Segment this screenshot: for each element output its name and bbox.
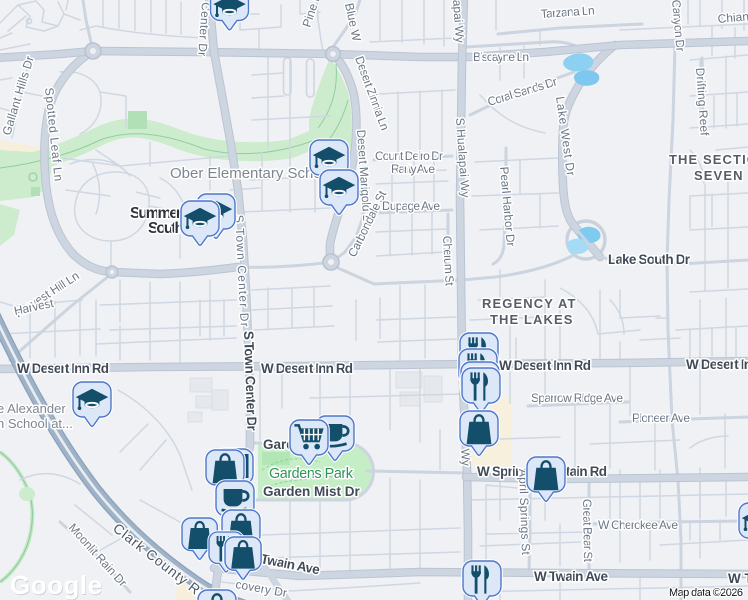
svg-text:W Twain Ave: W Twain Ave [534, 569, 608, 584]
svg-text:W Desert Inn Rd: W Desert Inn Rd [17, 361, 109, 376]
svg-text:Map data ©2026: Map data ©2026 [669, 587, 743, 599]
svg-text:Lake South Dr: Lake South Dr [608, 252, 691, 267]
svg-text:Pioneer Ave: Pioneer Ave [632, 411, 690, 425]
svg-text:South: South [148, 220, 184, 237]
svg-text:Garden Mist Dr: Garden Mist Dr [263, 484, 361, 499]
svg-text:Wy: Wy [458, 448, 473, 466]
svg-text:Sparrow Ridge Ave: Sparrow Ridge Ave [531, 391, 623, 405]
svg-text:SEVEN: SEVEN [694, 168, 744, 183]
svg-text:W Desert Inn Rd: W Desert Inn Rd [261, 361, 353, 376]
svg-text:Great Bear St: Great Bear St [580, 499, 595, 563]
svg-text:Dupage Ave: Dupage Ave [382, 199, 440, 213]
svg-text:W Desert Inn Rd: W Desert Inn Rd [499, 358, 591, 373]
svg-text:n School at...: n School at... [0, 416, 73, 431]
svg-text:W Desert In: W Desert In [686, 357, 748, 372]
svg-text:Biscayne Ln: Biscayne Ln [473, 50, 529, 64]
svg-text:Cherum St: Cherum St [440, 235, 457, 286]
svg-text:THE LAKES: THE LAKES [490, 312, 574, 327]
svg-text:REGENCY AT: REGENCY AT [482, 296, 577, 311]
svg-text:W Cherokee Ave: W Cherokee Ave [598, 518, 678, 532]
svg-text:e Alexander: e Alexander [0, 401, 66, 416]
svg-text:Chianti: Chianti [717, 9, 748, 26]
svg-text:THE SECTIO: THE SECTIO [669, 152, 748, 167]
svg-text:Gardens Park: Gardens Park [269, 466, 354, 482]
svg-text:Rarity Ave: Rarity Ave [391, 162, 435, 176]
svg-text:Count Deiro Dr: Count Deiro Dr [375, 149, 443, 163]
svg-text:Google: Google [10, 570, 103, 600]
svg-text:W T: W T [728, 571, 748, 586]
